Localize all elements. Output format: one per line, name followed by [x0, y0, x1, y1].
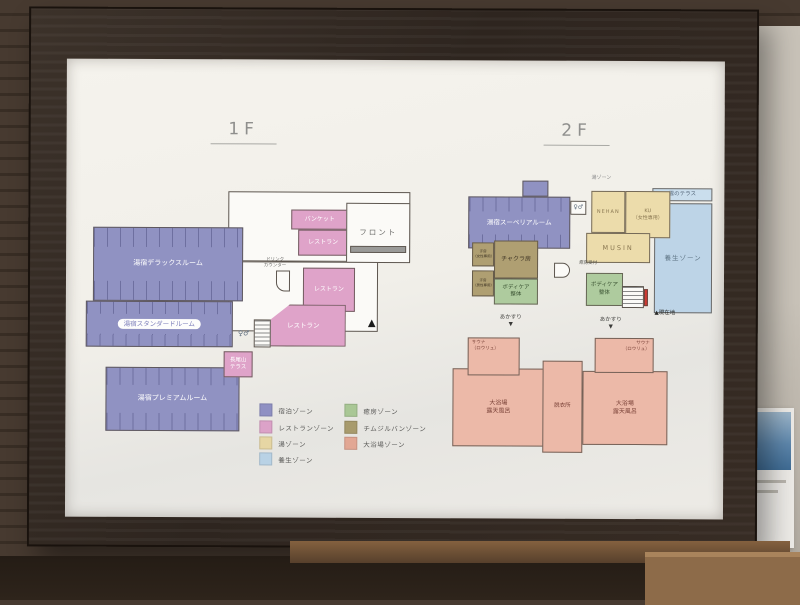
room-sauna-left: サウナ （ロウリュ）: [468, 337, 520, 375]
toilet-icons-2f-label: ♀♂: [573, 204, 583, 212]
legend-label: 癒房ゾーン: [363, 405, 398, 415]
room-sauna-left-label: サウナ （ロウリュ）: [469, 338, 499, 352]
room-datsuijo-label: 脱衣所: [554, 403, 571, 410]
yu-zone-label-label: 湯ゾーン: [592, 175, 612, 182]
room-superior-label: 湯宿スーペリアルーム: [487, 218, 552, 227]
room-kanbo-w-label: 汗房 （女性専用）: [473, 250, 493, 259]
legend-label: 大浴場ゾーン: [363, 438, 405, 448]
room-kanbo-w: 汗房 （女性専用）: [472, 242, 494, 266]
superior-tab: [522, 181, 548, 197]
legend-swatch: [259, 420, 272, 433]
legend-item: チムジルバンゾーン: [344, 421, 426, 434]
legend-swatch: [344, 421, 357, 434]
room-ku: KU （女性専用）: [625, 191, 670, 238]
stairs-2f: [622, 286, 644, 308]
current-location-label-label: ▲現在地: [654, 311, 675, 318]
legend-swatch: [259, 452, 272, 465]
akasuri-right: あかすり ▼: [596, 315, 626, 333]
picture-frame: 1F 2F 湯宿デラックスルーム湯宿スタンダードルーム湯宿プレミアムルームバンケ…: [27, 6, 759, 549]
yubo-reception-label: 癒房受付: [574, 259, 602, 268]
legend-item: 養生ゾーン: [259, 452, 313, 465]
legend-swatch: [259, 436, 272, 449]
legend-label: 養生ゾーン: [278, 454, 313, 464]
room-bath-right-label: 大浴場 露天風呂: [613, 400, 637, 416]
toilet-icons-2f: ♀♂: [570, 201, 586, 215]
current-location-label: ▲現在地: [646, 309, 684, 319]
cloud-terrace-label: 雲のテラス: [669, 191, 696, 198]
room-chakra-label: チャクラ房: [501, 256, 531, 264]
room-nehan: NEHAN: [591, 191, 625, 233]
floor-map-poster: 1F 2F 湯宿デラックスルーム湯宿スタンダードルーム湯宿プレミアムルームバンケ…: [65, 59, 725, 520]
legend-item: レストランゾーン: [259, 420, 334, 433]
akasuri-left: あかすり ▼: [496, 312, 526, 330]
room-kanbo-m-label: 汗房 （男性専用）: [473, 279, 493, 288]
room-chakra: チャクラ房: [494, 240, 538, 278]
legend-item: 湯ゾーン: [259, 436, 306, 449]
legend-item: 宿泊ゾーン: [259, 403, 313, 416]
legend-label: チムジルバンゾーン: [363, 422, 426, 432]
current-location-marker: [644, 289, 648, 306]
room-bath-left-label: 大浴場 露天風呂: [486, 400, 510, 416]
legend-item: 癒房ゾーン: [344, 404, 398, 417]
legend-item: 大浴場ゾーン: [344, 437, 405, 450]
room-sauna-right-label: サウナ （ロウリュ）: [623, 339, 653, 353]
room-datsuijo: 脱衣所: [542, 361, 582, 453]
legend-label: 宿泊ゾーン: [278, 405, 313, 415]
yu-zone-label: 湯ゾーン: [586, 173, 616, 183]
yojo-zone-label: 養生ゾーン: [664, 254, 701, 263]
legend-swatch: [259, 403, 272, 416]
room-kanbo-m: 汗房 （男性専用）: [472, 270, 494, 296]
reception-counter: [554, 263, 570, 278]
room-bodycare-left-label: ボディケア 整体: [502, 284, 529, 298]
table-corner: [645, 552, 800, 605]
room-ku-label: KU （女性専用）: [633, 208, 663, 221]
room-bodycare-left: ボディケア 整体: [494, 278, 538, 304]
room-bodycare-right-label: ボディケア 整体: [591, 282, 618, 296]
akasuri-left-label: あかすり ▼: [500, 314, 522, 328]
akasuri-right-label: あかすり ▼: [600, 317, 622, 331]
legend-label: レストランゾーン: [278, 422, 334, 432]
legend-swatch: [344, 437, 357, 450]
yubo-reception-label-label: 癒房受付: [579, 260, 597, 266]
room-bodycare-right: ボディケア 整体: [586, 273, 623, 306]
legend: 宿泊ゾーンレストランゾーン湯ゾーン養生ゾーン癒房ゾーンチムジルバンゾーン大浴場ゾ…: [259, 401, 469, 466]
room-nehan-label: NEHAN: [597, 209, 620, 216]
legend-label: 湯ゾーン: [278, 438, 306, 448]
room-sauna-right: サウナ （ロウリュ）: [595, 338, 654, 373]
legend-swatch: [344, 404, 357, 417]
room-bath-right: 大浴場 露天風呂: [582, 371, 667, 445]
room-musin-label: MUSIN: [602, 244, 633, 253]
